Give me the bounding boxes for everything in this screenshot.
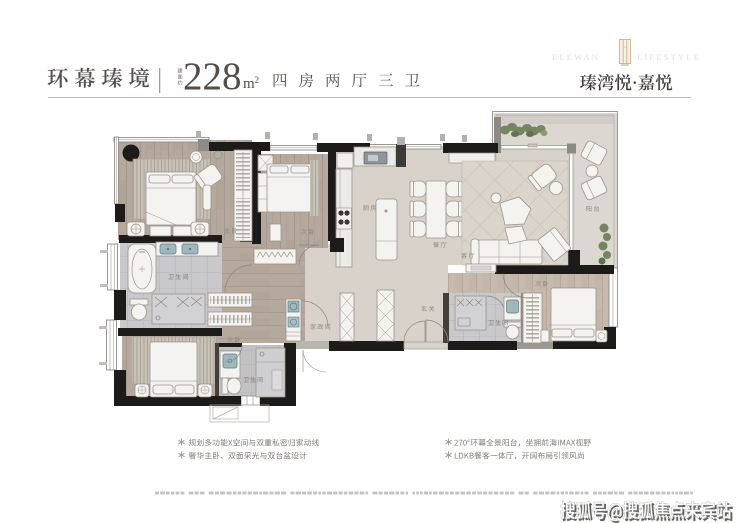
svg-text:LIFESTYLE: LIFESTYLE	[637, 52, 701, 62]
svg-text:228: 228	[183, 55, 242, 98]
svg-text:ELEWAN: ELEWAN	[552, 52, 600, 62]
